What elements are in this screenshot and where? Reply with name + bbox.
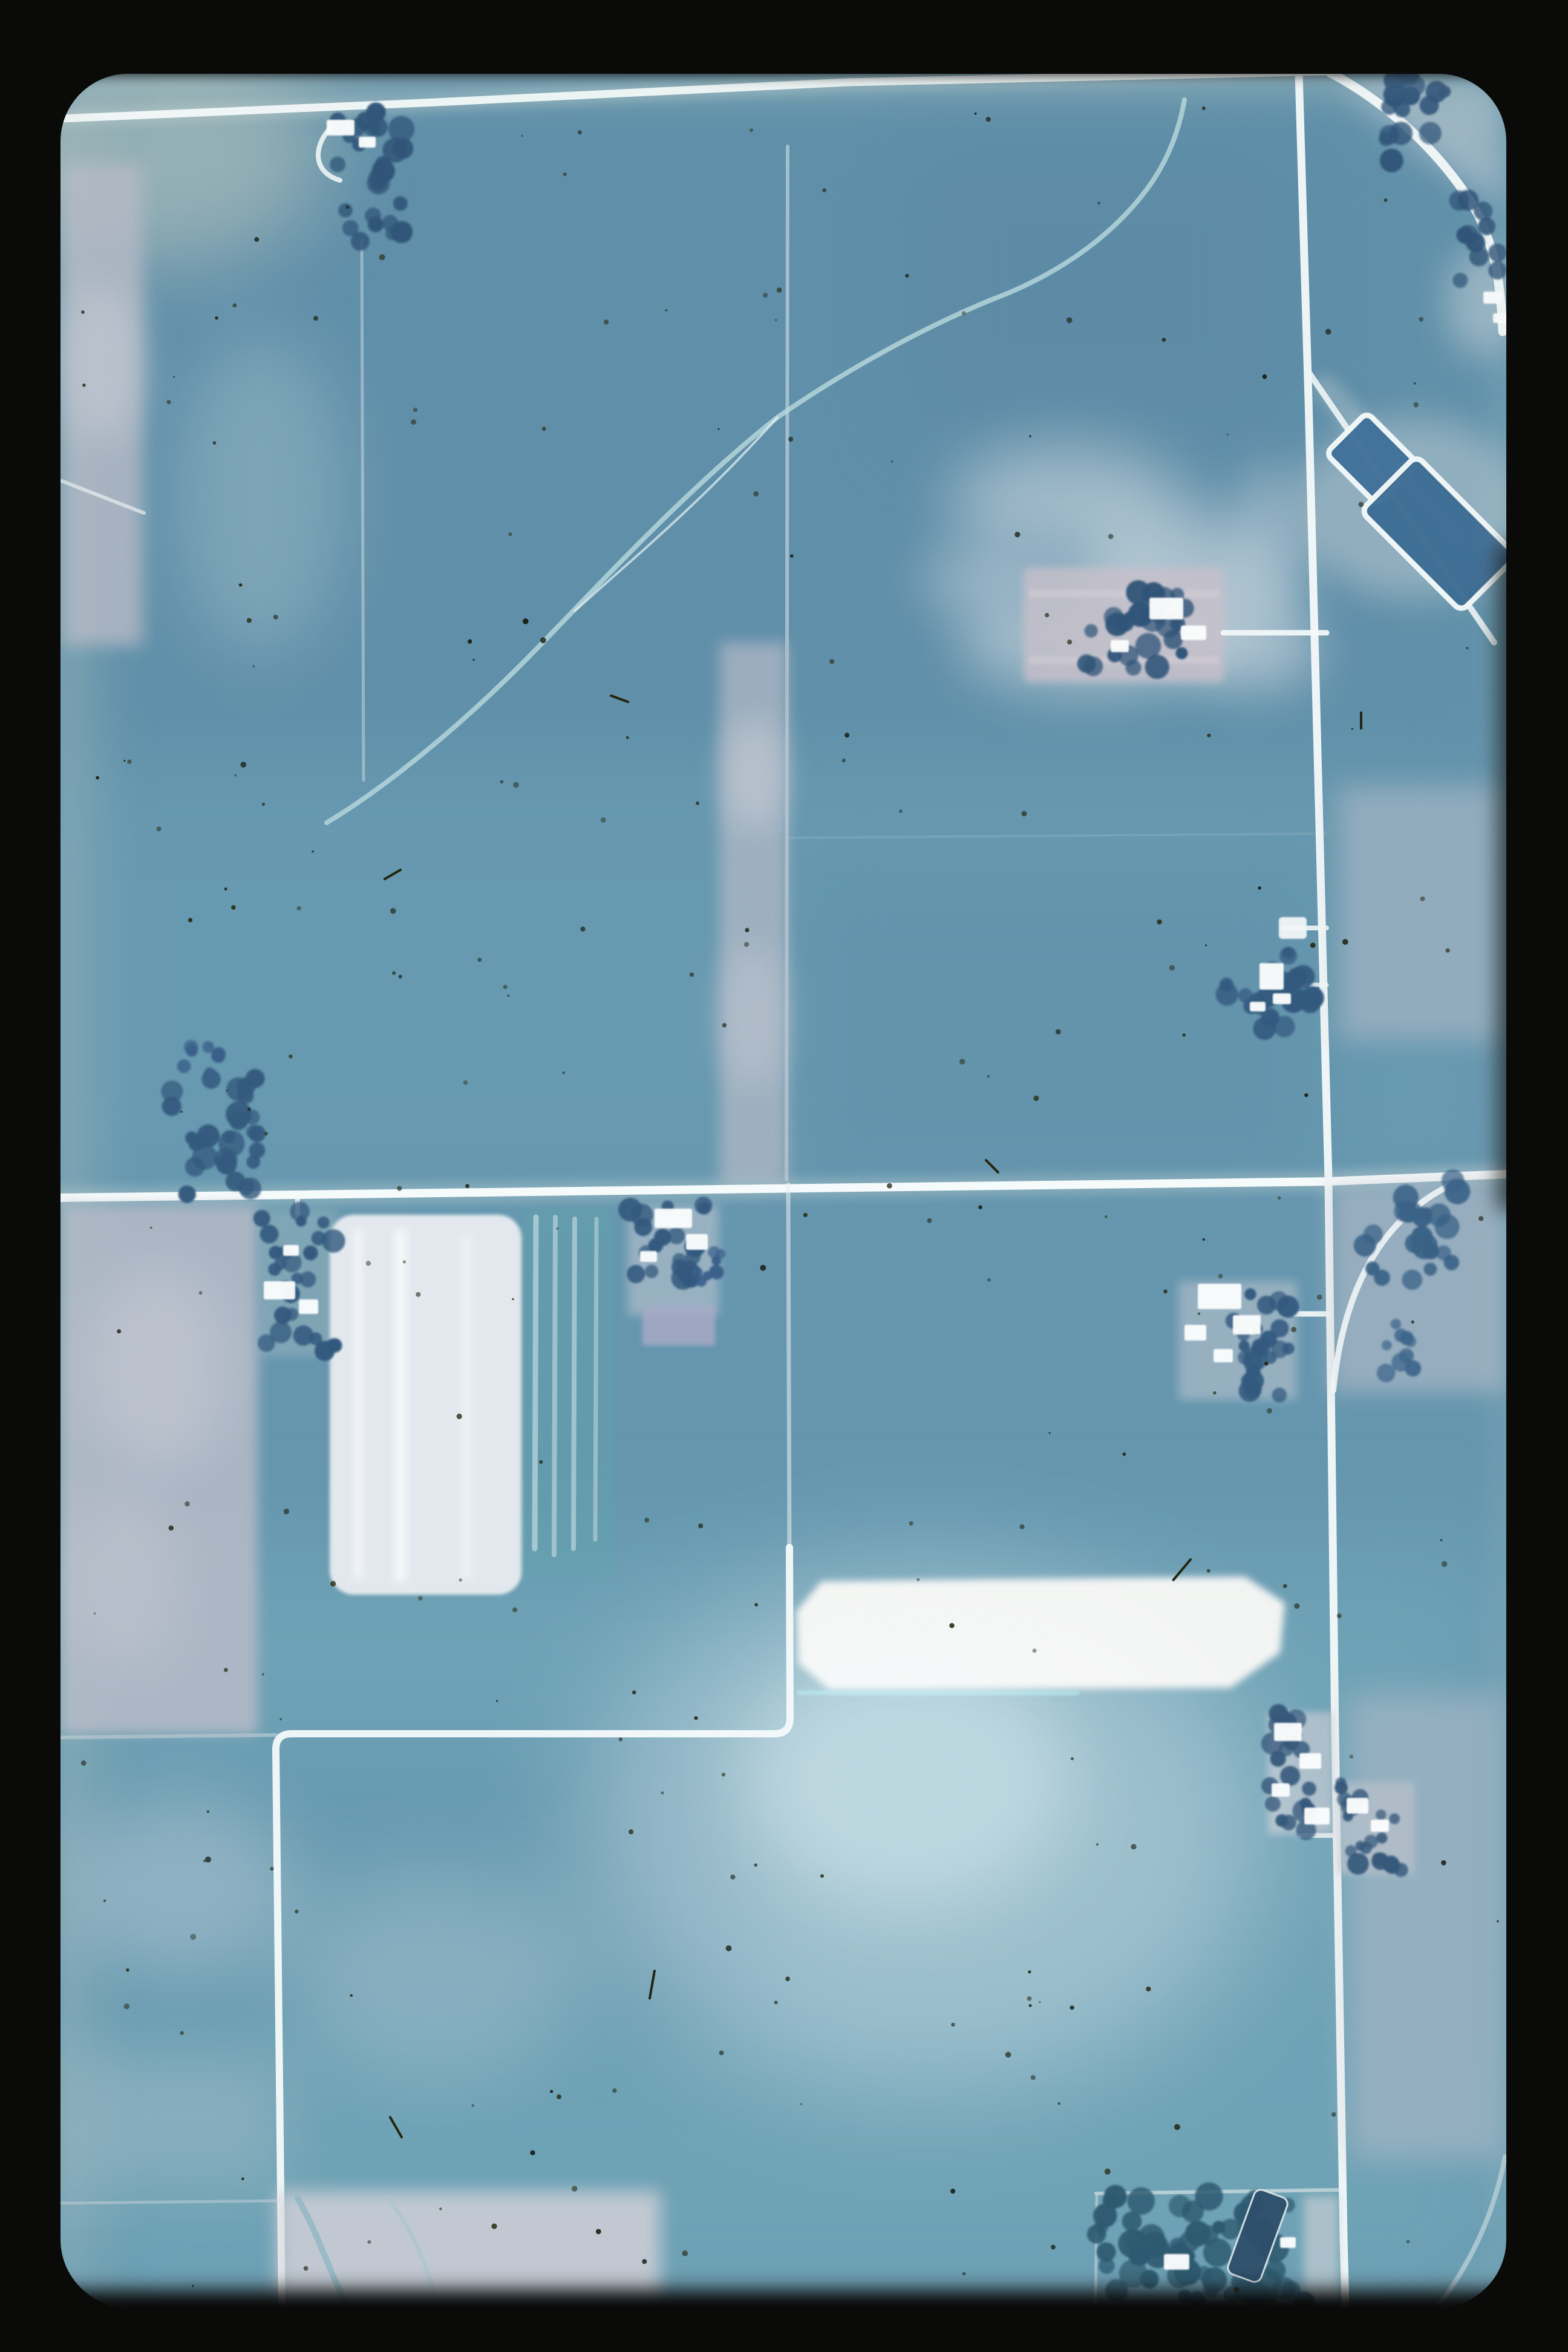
field-pink-right [1338, 786, 1506, 1040]
field-striping [353, 1229, 363, 1579]
pale-mottle [719, 944, 786, 1089]
field-striping [1028, 590, 1219, 597]
pale-band [62, 2054, 286, 2187]
farm-pad [1279, 917, 1307, 939]
pale-patch [1304, 2196, 1339, 2304]
pale-mottle [67, 1491, 181, 1667]
field-pale-bottom [277, 2191, 661, 2304]
field-boundary [362, 241, 364, 780]
field-boundary [60, 1735, 276, 1737]
field-tint [792, 865, 1325, 1186]
photo-area [0, 36, 1539, 2352]
pale-mottle [284, 1869, 587, 2075]
pale-knolls [1234, 460, 1307, 629]
field-striping [535, 1217, 536, 1549]
field-striping [394, 1229, 407, 1581]
aerial-photo-svg [0, 0, 1568, 2352]
field-striping [573, 1219, 575, 1549]
field-tint [907, 133, 1295, 436]
light-glow [744, 1655, 1071, 1909]
road-faint [788, 1184, 789, 1552]
pale-mottle [722, 717, 785, 832]
field-striping [461, 1235, 472, 1579]
pale-mottle [67, 1797, 296, 1978]
field-striping [554, 1217, 555, 1555]
slide-scan [0, 0, 1568, 2352]
pale-mottle [59, 284, 144, 442]
field-lavender [642, 1307, 715, 1345]
pale-mottle [88, 1267, 227, 1467]
field-striping [595, 1219, 596, 1540]
field-pink-right [1348, 1694, 1506, 2160]
pale-mottle [175, 333, 345, 659]
